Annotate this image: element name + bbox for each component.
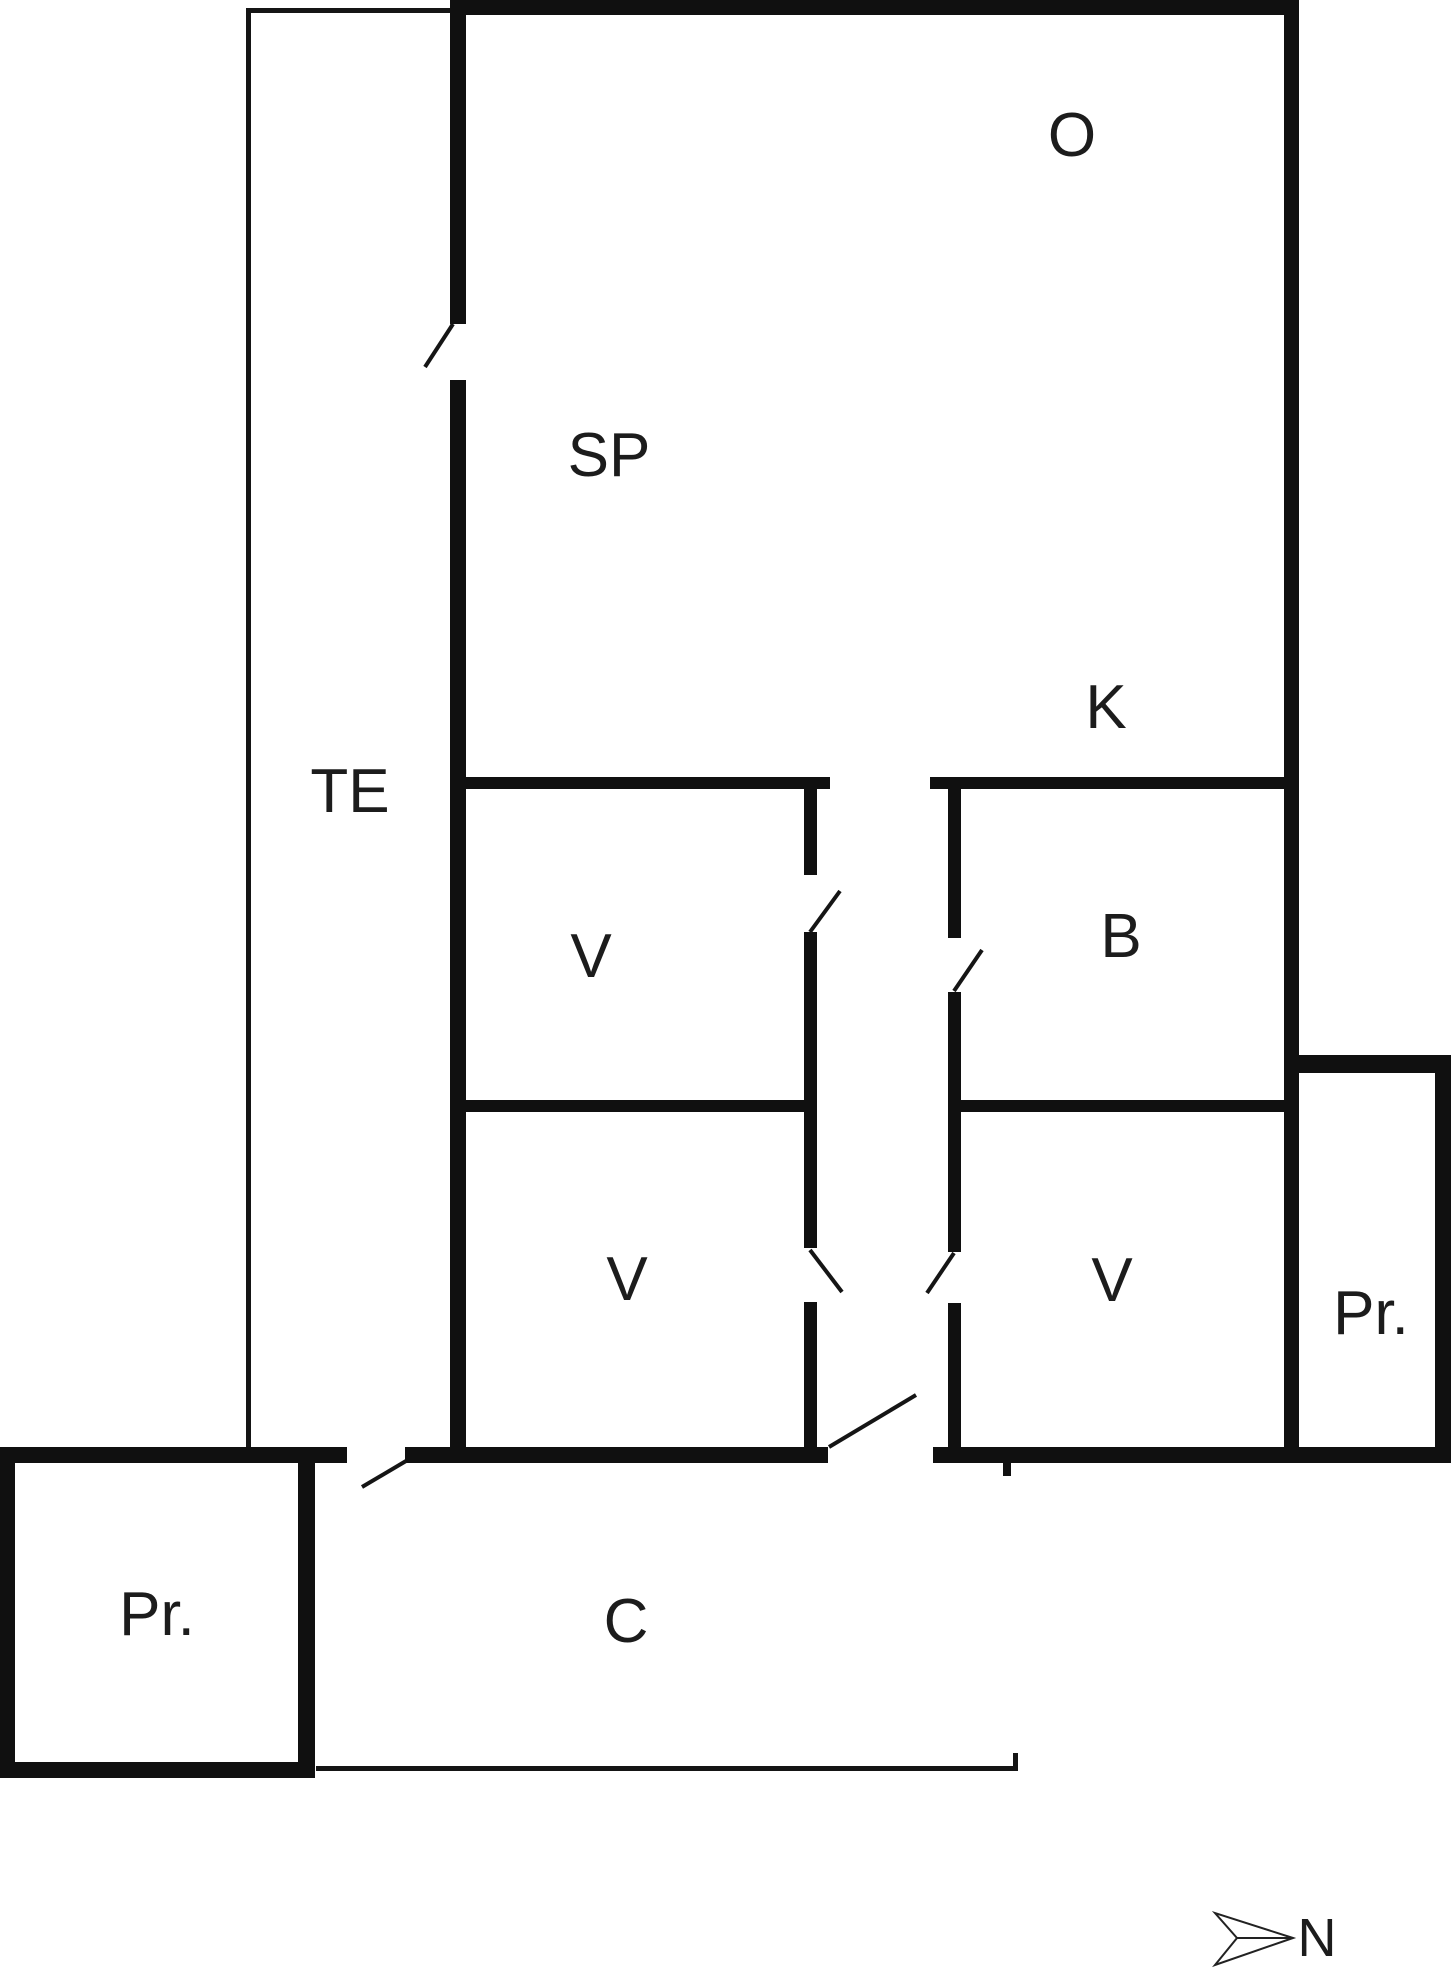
room-label-o: O [1048,105,1096,167]
room-label-b: B [1100,906,1141,968]
door-leaf-main-entrance [829,1395,916,1447]
room-label-pr-right: Pr. [1333,1283,1409,1345]
door-leaf-terrace-living [425,324,453,367]
door-leaf-room-v-bottom-left [810,1250,842,1292]
north-arrow-icon [1215,1913,1293,1965]
room-label-v-bottom-left: V [606,1249,647,1311]
room-label-v-top: V [570,926,611,988]
door-leaf-room-v-top [810,891,840,932]
door-leaf-room-v-bottom-right [927,1253,954,1293]
room-label-te: TE [310,761,389,823]
door-leaf-room-b [954,950,982,991]
room-label-k: K [1085,677,1126,739]
plan-symbols-layer [0,0,1451,1980]
room-label-pr-left: Pr. [119,1584,195,1646]
door-leaf-terrace-porch [362,1461,406,1487]
floor-plan: O SP TE K V B V V Pr. Pr. C N [0,0,1451,1980]
room-label-c: C [604,1591,649,1653]
room-label-sp: SP [568,425,651,487]
room-label-v-bottom-right: V [1091,1250,1132,1312]
north-label: N [1298,1911,1337,1965]
